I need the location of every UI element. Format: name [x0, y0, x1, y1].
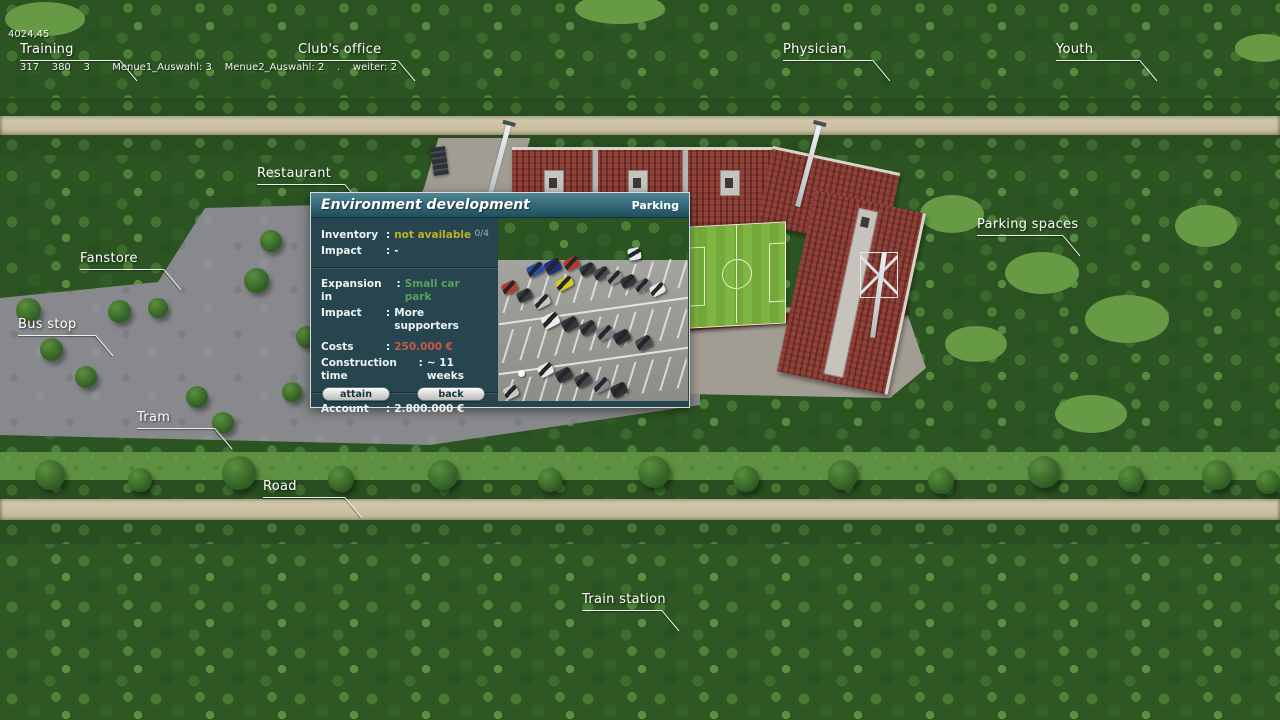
- van: [627, 247, 642, 261]
- callout-line: [783, 60, 873, 61]
- row-value: Small car park: [405, 278, 488, 304]
- bush: [186, 386, 208, 408]
- map-label-physician[interactable]: Physician: [783, 42, 851, 60]
- row-label: Impact: [321, 307, 384, 333]
- inventory-counter: 0/4: [475, 229, 489, 239]
- map-label-text: Youth: [1056, 42, 1097, 60]
- grass-gap: [1175, 205, 1237, 247]
- tree: [538, 468, 562, 492]
- bush: [75, 366, 97, 388]
- parking-preview-photo: [498, 218, 688, 401]
- row-value: 2.800.000 €: [394, 403, 464, 416]
- tree: [35, 460, 65, 490]
- bush: [108, 300, 131, 323]
- map-label-text: Parking spaces: [977, 217, 1082, 235]
- map-label-text: Fanstore: [80, 251, 142, 269]
- callout-line: [263, 497, 345, 498]
- row-value: More supporters: [394, 307, 488, 333]
- debug-line-2: 317 380 3 Menue1_Auswahl: 3 Menue2_Auswa…: [20, 62, 397, 73]
- row-impact-new: Impact : More supporters: [321, 307, 488, 333]
- debug-line-1: 4024,45: [8, 29, 397, 40]
- tree: [1256, 470, 1280, 494]
- map-label-parking-spaces[interactable]: Parking spaces: [977, 217, 1082, 235]
- map-label-tram[interactable]: Tram: [137, 410, 174, 428]
- row-label: Expansion in: [321, 278, 394, 304]
- callout-line: [137, 428, 215, 429]
- row-value: ~ 11 weeks: [427, 357, 488, 383]
- callout-line: [18, 335, 96, 336]
- pitch-penalty-right: [769, 242, 786, 302]
- dialog-buttons: attain back: [322, 387, 485, 401]
- environment-development-dialog: Environment development Parking 0/4 Inve…: [310, 192, 690, 408]
- row-value: 250.000 €: [394, 341, 453, 354]
- grass-gap: [1005, 252, 1079, 294]
- row-label: Account: [321, 403, 384, 416]
- tree-row: [0, 98, 1280, 116]
- row-label: Inventory: [321, 229, 384, 242]
- soccer-ball: [518, 370, 525, 377]
- row-value: not available: [394, 229, 471, 242]
- tree: [638, 456, 670, 488]
- tree: [222, 456, 256, 490]
- dialog-info-column: 0/4 Inventory : not available Impact : -…: [311, 218, 498, 407]
- map-label-text: Physician: [783, 42, 851, 60]
- row-colon: :: [386, 229, 390, 242]
- back-button[interactable]: back: [417, 387, 485, 401]
- tree: [1202, 460, 1232, 490]
- tree: [428, 460, 458, 490]
- road-lower: [0, 497, 1280, 522]
- bush: [244, 268, 269, 293]
- tree: [733, 466, 759, 492]
- row-colon: :: [396, 278, 400, 304]
- grass-gap: [1055, 395, 1127, 433]
- map-label-restaurant[interactable]: Restaurant: [257, 166, 335, 184]
- tree: [1118, 466, 1144, 492]
- dialog-body: 0/4 Inventory : not available Impact : -…: [311, 218, 689, 407]
- row-account: Account : 2.800.000 €: [321, 403, 488, 416]
- grass-gap: [1085, 295, 1169, 343]
- game-scene: 4024,45 317 380 3 Menue1_Auswahl: 3 Menu…: [0, 0, 1280, 720]
- row-construction-time: Construction time : ~ 11 weeks: [321, 357, 488, 383]
- parking-bay-lines: [498, 305, 688, 363]
- road-upper: [0, 114, 1280, 137]
- row-expansion: Expansion in : Small car park: [321, 278, 488, 304]
- car: [525, 261, 545, 279]
- map-label-youth[interactable]: Youth: [1056, 42, 1097, 60]
- row-impact-current: Impact : -: [321, 245, 488, 258]
- tree: [928, 468, 954, 494]
- attain-button[interactable]: attain: [322, 387, 390, 401]
- map-label-road[interactable]: Road: [263, 479, 301, 497]
- tree-row: [0, 520, 1280, 544]
- tree: [328, 466, 354, 492]
- photo-tree-line: [498, 218, 688, 260]
- pitch-center-circle: [722, 258, 752, 290]
- map-label-text: Bus stop: [18, 317, 81, 335]
- dialog-category: Parking: [632, 199, 679, 212]
- tree: [828, 460, 858, 490]
- tree-row: [0, 480, 1280, 499]
- row-colon: :: [419, 357, 423, 383]
- callout-line: [977, 235, 1063, 236]
- row-value: -: [394, 245, 398, 258]
- map-label-text: Train station: [582, 592, 670, 610]
- callout-line: [582, 610, 662, 611]
- row-colon: :: [386, 307, 390, 333]
- map-label-fanstore[interactable]: Fanstore: [80, 251, 142, 269]
- grass-gap: [945, 326, 1007, 362]
- row-label: Construction time: [321, 357, 417, 383]
- bush: [40, 338, 63, 361]
- bush: [282, 382, 302, 402]
- callout-line: [257, 184, 345, 185]
- map-label-text: Restaurant: [257, 166, 335, 184]
- debug-readout: 4024,45 317 380 3 Menue1_Auswahl: 3 Menu…: [8, 7, 397, 95]
- callout-line: [1056, 60, 1140, 61]
- row-label: Costs: [321, 341, 384, 354]
- row-label: Impact: [321, 245, 384, 258]
- bush: [148, 298, 168, 318]
- row-costs: Costs : 250.000 €: [321, 341, 488, 354]
- row-colon: :: [386, 245, 390, 258]
- map-label-bus-stop[interactable]: Bus stop: [18, 317, 81, 335]
- row-colon: :: [386, 341, 390, 354]
- stadium-pitch: [688, 221, 786, 328]
- row-inventory: Inventory : not available: [321, 229, 488, 242]
- map-label-text: Tram: [137, 410, 174, 428]
- row-colon: :: [386, 403, 390, 416]
- grass-gap: [920, 195, 984, 233]
- tree: [1028, 456, 1060, 488]
- dialog-titlebar: Environment development Parking: [311, 193, 689, 218]
- stand-stair-tower: [720, 170, 740, 196]
- callout-line: [80, 269, 164, 270]
- map-label-text: Road: [263, 479, 301, 497]
- tree: [128, 468, 152, 492]
- separator: [311, 267, 498, 269]
- bush: [260, 230, 282, 252]
- map-label-train-station[interactable]: Train station: [582, 592, 670, 610]
- dialog-title: Environment development: [321, 197, 530, 213]
- pitch-penalty-left: [688, 247, 705, 307]
